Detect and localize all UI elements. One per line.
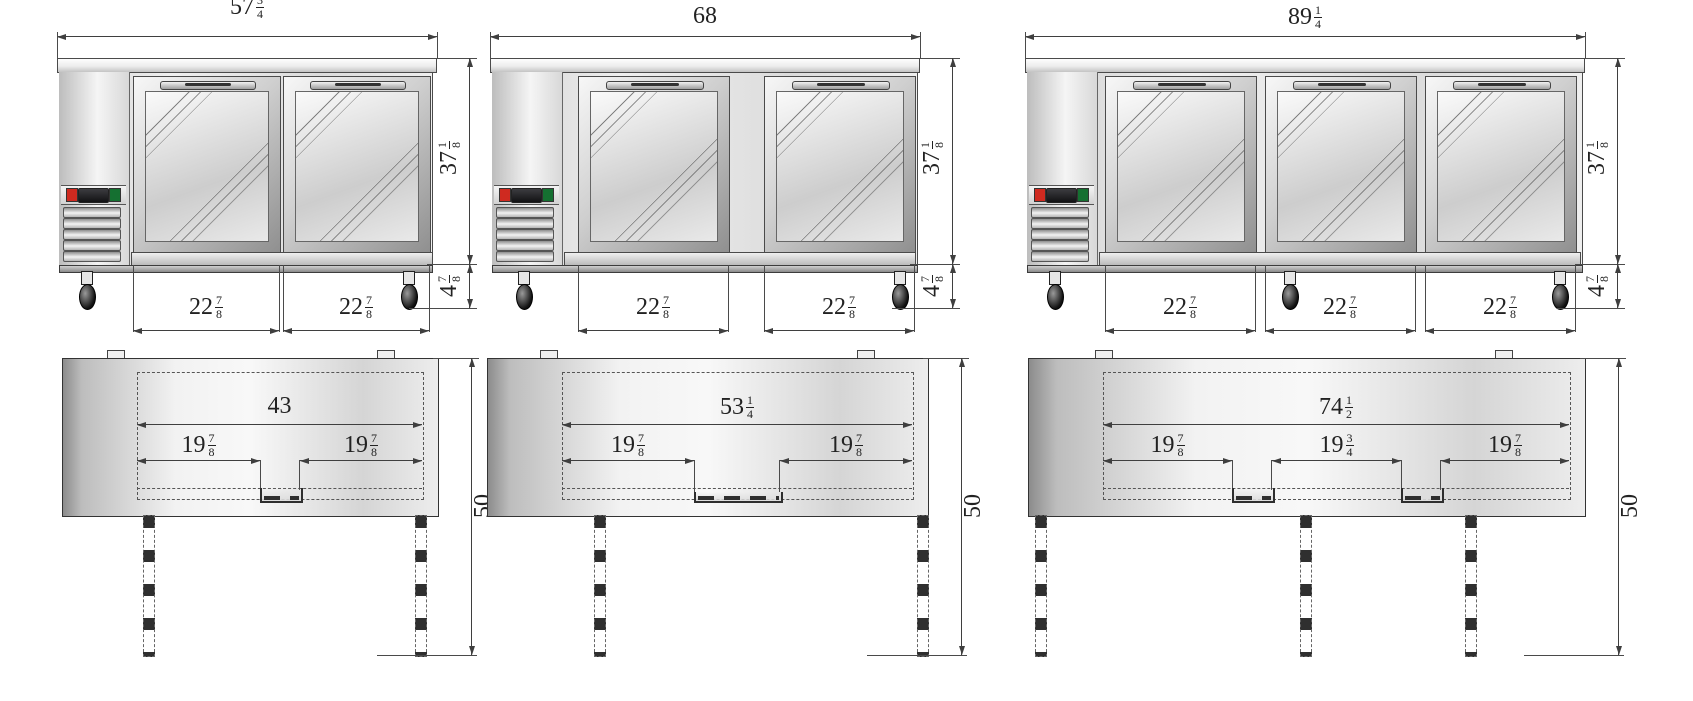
louver-vent xyxy=(1031,251,1089,262)
glass-door xyxy=(133,76,281,254)
louver-vent xyxy=(63,207,121,218)
glass-door xyxy=(1265,76,1417,254)
counter-top xyxy=(490,58,920,73)
dimension-line xyxy=(57,36,437,37)
compressor-section xyxy=(1027,72,1098,265)
louver-vent xyxy=(496,240,554,251)
dim-label-door-span: 1978 xyxy=(1103,432,1232,458)
dimension-line xyxy=(1103,424,1569,425)
notch-detail xyxy=(1405,496,1440,500)
open-door-projection xyxy=(143,515,155,657)
dim-label-base-height: 478 xyxy=(1579,261,1615,311)
extension-line xyxy=(377,655,477,656)
extension-line xyxy=(1415,265,1416,332)
louver-vent xyxy=(1031,240,1089,251)
dimension-line xyxy=(578,330,728,331)
caster-fork xyxy=(1284,271,1296,285)
dimension-line xyxy=(1272,460,1401,461)
door-glass xyxy=(776,91,904,242)
dimension-line xyxy=(1441,460,1569,461)
plan-view-unit-1: 43 1978 1978 50 xyxy=(62,340,542,675)
dim-label-door-width: 2278 xyxy=(578,294,728,320)
dimension-line xyxy=(1265,330,1415,331)
dimension-line xyxy=(137,460,260,461)
red-indicator-button xyxy=(66,188,78,202)
extension-line xyxy=(779,460,780,492)
dashed-line xyxy=(1103,488,1569,489)
control-panel xyxy=(1029,185,1094,205)
louver-vent xyxy=(63,251,121,262)
dimension-line xyxy=(490,36,920,37)
glass-door xyxy=(283,76,431,254)
temperature-display xyxy=(1046,188,1076,203)
door-glass xyxy=(1437,91,1565,242)
dimension-line xyxy=(1425,330,1575,331)
dimension-line xyxy=(133,330,279,331)
front-view-unit-3: 8914 xyxy=(1025,0,1665,340)
louver-vent xyxy=(63,229,121,240)
glass-door xyxy=(1105,76,1257,254)
dim-label-door-span: 1978 xyxy=(1441,432,1569,458)
caster-fork xyxy=(518,271,530,285)
caster-wheel xyxy=(514,271,534,310)
dimension-line xyxy=(952,264,953,308)
door-recess-notch xyxy=(260,488,303,503)
extension-line xyxy=(1232,460,1233,490)
extension-line xyxy=(1401,460,1402,490)
red-indicator-button xyxy=(1034,188,1046,202)
louver-vent xyxy=(496,251,554,262)
door-recess-notch xyxy=(694,492,783,503)
caster-fork xyxy=(1049,271,1061,285)
temperature-display xyxy=(78,188,108,203)
fraction: 34 xyxy=(256,0,264,20)
door-handle xyxy=(1293,81,1391,90)
caster-fork xyxy=(81,271,93,285)
compressor-section xyxy=(59,72,130,265)
dim-label-opening-width: 43 xyxy=(137,394,422,418)
door-glass xyxy=(590,91,718,242)
caster-wheel xyxy=(77,271,97,310)
plan-view-unit-2: 5314 1978 1978 50 xyxy=(487,340,1017,675)
dimension-line xyxy=(780,460,912,461)
extension-line xyxy=(1440,460,1441,490)
dim-label-door-width: 2278 xyxy=(1425,294,1575,320)
wheel xyxy=(516,284,533,310)
dim-label-door-width: 2278 xyxy=(1265,294,1415,320)
glass-door xyxy=(764,76,916,254)
dim-label-door-span: 1978 xyxy=(562,432,694,458)
door-handle xyxy=(792,81,890,90)
dim-label-door-span: 1978 xyxy=(780,432,912,458)
extension-line xyxy=(920,32,921,58)
glass-door xyxy=(578,76,730,254)
open-door-projection xyxy=(594,515,606,657)
dim-label-base-height: 478 xyxy=(431,261,467,311)
louver-vent xyxy=(496,229,554,240)
door-glass xyxy=(295,91,419,242)
dim-label-overall-height: 3718 xyxy=(910,128,954,188)
open-door-projection xyxy=(917,515,929,657)
dimension-line xyxy=(1103,460,1232,461)
bottom-rail xyxy=(492,265,918,273)
door-handle xyxy=(1453,81,1551,90)
wheel xyxy=(1047,284,1064,310)
dimension-line xyxy=(562,424,912,425)
dim-label-overall-width-1: 5734 xyxy=(147,0,347,20)
dim-label-overall-height: 3718 xyxy=(1575,128,1619,188)
extension-line xyxy=(299,460,300,490)
red-indicator-button xyxy=(499,188,511,202)
louver-vent xyxy=(1031,229,1089,240)
dim-label-overall-width-3: 8914 xyxy=(1205,4,1405,30)
dimension-line xyxy=(562,460,694,461)
door-handle xyxy=(310,81,405,90)
caster-wheel xyxy=(1045,271,1065,310)
dashed-line xyxy=(562,488,912,489)
control-panel xyxy=(494,185,559,205)
extension-line xyxy=(1575,265,1576,332)
dim-label-overall-depth: 50 xyxy=(953,478,993,534)
dim-label-opening-width: 5314 xyxy=(562,394,912,420)
extension-line xyxy=(279,265,280,332)
dim-label-door-width: 2278 xyxy=(283,294,429,320)
dim-label-door-span: 1978 xyxy=(137,432,260,458)
door-recess-notch xyxy=(1232,488,1275,503)
counter-top xyxy=(1025,58,1585,73)
louver-vent xyxy=(496,207,554,218)
dim-label-overall-width-2: 68 xyxy=(605,4,805,28)
extension-line xyxy=(1025,32,1026,58)
dimension-line xyxy=(469,264,470,308)
door-glass xyxy=(1277,91,1405,242)
dim-label-overall-depth: 50 xyxy=(1610,478,1650,534)
caster-fork xyxy=(1554,271,1566,285)
extension-line xyxy=(1585,32,1586,58)
dimension-line xyxy=(283,330,429,331)
wheel xyxy=(79,284,96,310)
extension-line xyxy=(867,655,967,656)
counter-top xyxy=(57,58,437,73)
temperature-display xyxy=(511,188,541,203)
dimension-line xyxy=(137,424,422,425)
open-door-projection xyxy=(1035,515,1047,657)
open-door-projection xyxy=(1300,515,1312,657)
extension-line xyxy=(260,460,261,490)
open-door-projection xyxy=(415,515,427,657)
plan-view-unit-3: 7412 1978 1934 1978 50 xyxy=(1028,340,1668,675)
extension-line xyxy=(728,265,729,332)
front-view-unit-1: 5734 xyxy=(57,0,517,340)
louver-vent xyxy=(63,240,121,251)
door-handle xyxy=(160,81,255,90)
extension-line xyxy=(57,32,58,58)
extension-line xyxy=(437,32,438,58)
extension-line xyxy=(1255,265,1256,332)
door-handle xyxy=(606,81,704,90)
notch-detail xyxy=(698,496,779,500)
green-indicator-button xyxy=(542,188,554,202)
dim-label-base-height: 478 xyxy=(914,261,950,311)
extension-line xyxy=(490,32,491,58)
green-indicator-button xyxy=(1077,188,1089,202)
dim-label-door-span: 1934 xyxy=(1272,432,1401,458)
control-panel xyxy=(61,185,126,205)
extension-line xyxy=(694,460,695,492)
notch-detail xyxy=(264,496,299,500)
glass-door xyxy=(1425,76,1577,254)
caster-fork xyxy=(894,271,906,285)
louver-vent xyxy=(63,218,121,229)
bottom-rail xyxy=(59,265,433,273)
dimension-line xyxy=(1617,264,1618,308)
extension-line xyxy=(1524,655,1624,656)
dim-label-opening-width: 7412 xyxy=(1103,394,1569,420)
bottom-rail xyxy=(1027,265,1583,273)
front-view-unit-2: 68 xyxy=(490,0,1010,340)
technical-drawing: 5734 xyxy=(0,0,1693,701)
louver-vent xyxy=(1031,218,1089,229)
caster-fork xyxy=(403,271,415,285)
dim-label-door-width: 2278 xyxy=(1105,294,1255,320)
door-glass xyxy=(145,91,269,242)
dimension-line xyxy=(1105,330,1255,331)
door-recess-notch xyxy=(1401,488,1444,503)
louver-vent xyxy=(496,218,554,229)
door-handle xyxy=(1133,81,1231,90)
dimension-line xyxy=(764,330,914,331)
dim-label-door-span: 1978 xyxy=(300,432,422,458)
notch-detail xyxy=(1236,496,1271,500)
dim-label-overall-height: 3718 xyxy=(427,128,471,188)
dimension-line xyxy=(1025,36,1585,37)
door-glass xyxy=(1117,91,1245,242)
dim-label-door-width: 2278 xyxy=(133,294,279,320)
louver-vent xyxy=(1031,207,1089,218)
extension-line xyxy=(1271,460,1272,490)
open-door-projection xyxy=(1465,515,1477,657)
extension-line xyxy=(429,265,430,332)
green-indicator-button xyxy=(109,188,121,202)
dimension-line xyxy=(300,460,422,461)
compressor-section xyxy=(492,72,563,265)
